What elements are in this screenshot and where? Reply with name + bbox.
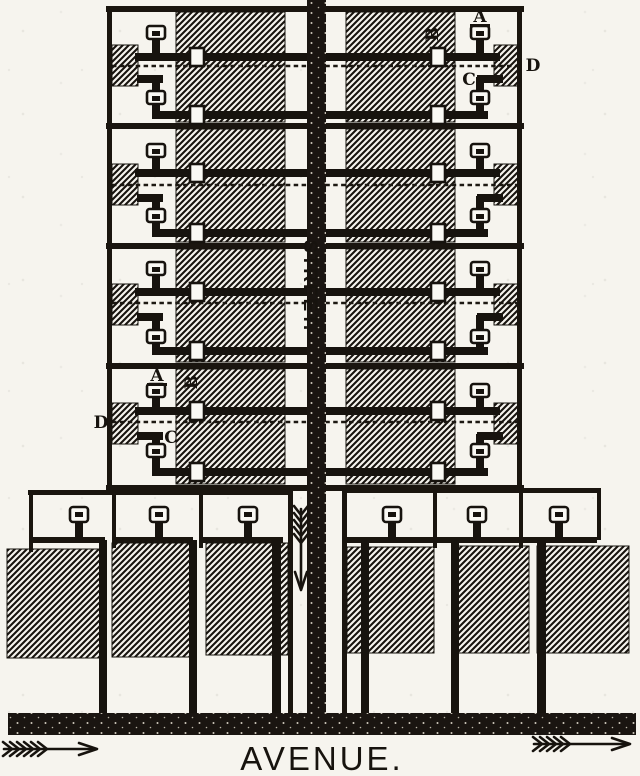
callout-b-label: B bbox=[182, 375, 202, 389]
house-block bbox=[537, 546, 629, 653]
meter-box bbox=[147, 384, 165, 411]
meter-box bbox=[471, 75, 503, 115]
lot-side-line bbox=[597, 493, 601, 540]
house-wall-pipe bbox=[33, 537, 105, 543]
street-edge-line bbox=[342, 493, 347, 714]
valve-box bbox=[190, 106, 204, 124]
meter-box bbox=[471, 384, 489, 411]
lot-side-line bbox=[519, 493, 523, 548]
service-pipe-vertical bbox=[272, 540, 281, 716]
house-block bbox=[112, 543, 190, 657]
flow-arrow-right-icon bbox=[3, 742, 97, 756]
meter-box bbox=[137, 75, 165, 115]
street-edge-line bbox=[288, 495, 293, 714]
house-block bbox=[454, 546, 529, 653]
lot-front-line bbox=[28, 490, 293, 495]
meter-box bbox=[239, 507, 257, 540]
engraving-diagram: A B C D A B C D STREET. AVENUE. bbox=[0, 0, 640, 776]
valve-box bbox=[190, 402, 204, 420]
meter-box bbox=[471, 26, 489, 57]
callout-d-label: D bbox=[526, 56, 541, 76]
callout-b-label: B bbox=[423, 27, 443, 41]
valve-box bbox=[431, 342, 445, 360]
service-pipe-vertical bbox=[99, 540, 107, 716]
valve-box bbox=[431, 402, 445, 420]
meter-box bbox=[147, 262, 165, 292]
valve-box bbox=[431, 463, 445, 481]
house-block bbox=[347, 547, 434, 653]
lot-side-line bbox=[199, 495, 203, 548]
street-main bbox=[307, 0, 326, 727]
valve-box bbox=[190, 342, 204, 360]
lot-side-line bbox=[29, 495, 33, 552]
meter-box bbox=[471, 432, 503, 472]
lot-front-line bbox=[342, 488, 601, 493]
callout-d-label: D bbox=[94, 413, 109, 433]
callout-a-underline bbox=[470, 24, 490, 27]
valve-box bbox=[431, 224, 445, 242]
meter-box bbox=[471, 313, 503, 352]
service-pipe-vertical bbox=[537, 540, 546, 716]
valve-box bbox=[190, 164, 204, 182]
meter-box bbox=[137, 432, 165, 472]
house-wall-pipe bbox=[203, 537, 283, 543]
meter-box bbox=[468, 507, 486, 540]
meter-box bbox=[147, 144, 165, 173]
meter-box bbox=[471, 194, 503, 233]
meter-box bbox=[137, 194, 165, 233]
house-block bbox=[7, 549, 102, 658]
meter-box bbox=[471, 262, 489, 292]
valve-box bbox=[431, 106, 445, 124]
curb-box bbox=[112, 284, 138, 325]
callout-a-underline bbox=[147, 383, 167, 386]
valve-box bbox=[190, 224, 204, 242]
meter-box bbox=[147, 26, 165, 57]
meter-box bbox=[137, 313, 165, 352]
meter-box bbox=[471, 144, 489, 173]
valve-box bbox=[190, 48, 204, 66]
lot-side-line bbox=[112, 495, 116, 548]
valve-box bbox=[190, 283, 204, 301]
curb-box bbox=[112, 403, 138, 444]
valve-box bbox=[431, 48, 445, 66]
curb-box bbox=[112, 45, 138, 86]
meter-box bbox=[550, 507, 568, 540]
service-pipe-vertical bbox=[361, 540, 369, 716]
meter-box bbox=[383, 507, 401, 540]
callout-c-label: C bbox=[462, 70, 476, 90]
valve-box bbox=[431, 283, 445, 301]
flow-arrow-down-icon bbox=[294, 506, 308, 590]
meter-box bbox=[150, 507, 168, 540]
avenue-label: AVENUE. bbox=[240, 740, 403, 776]
meter-box bbox=[70, 507, 88, 540]
service-plan-figure: A B C D A B C D STREET. AVENUE. bbox=[0, 0, 640, 776]
street-label: STREET. bbox=[299, 240, 320, 332]
valve-box bbox=[190, 463, 204, 481]
valve-box bbox=[431, 164, 445, 182]
house-wall-pipe bbox=[116, 537, 193, 543]
avenue-main bbox=[8, 713, 636, 735]
flow-arrow-right-icon bbox=[533, 737, 630, 751]
curb-box bbox=[112, 164, 138, 205]
callout-c-label: C bbox=[164, 428, 178, 448]
lot-side-line bbox=[433, 493, 437, 548]
service-pipe-vertical bbox=[189, 540, 197, 716]
service-pipe-vertical bbox=[451, 540, 459, 716]
